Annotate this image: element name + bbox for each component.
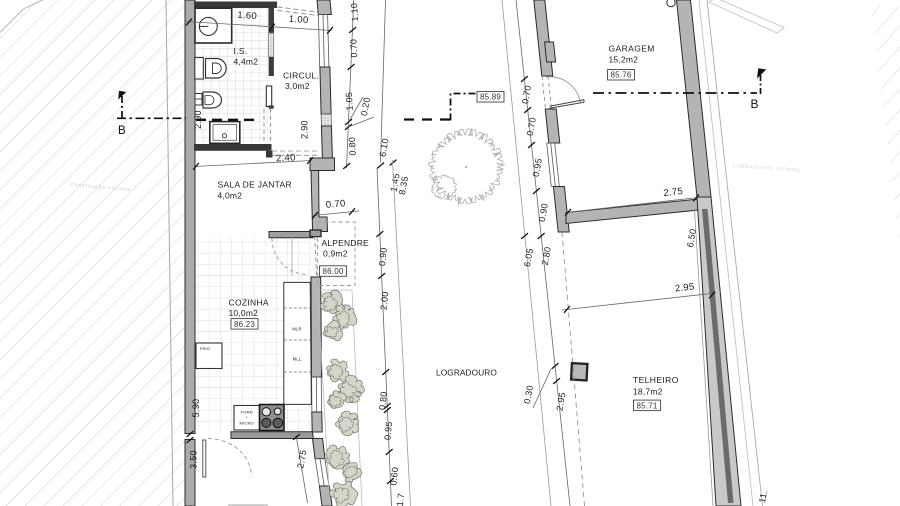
svg-text:0,9m2: 0,9m2 bbox=[323, 249, 348, 259]
svg-text:2.75: 2.75 bbox=[663, 186, 684, 199]
svg-text:SALA DE JANTAR: SALA DE JANTAR bbox=[218, 180, 292, 190]
svg-text:2.00: 2.00 bbox=[379, 291, 391, 311]
svg-text:4,0m2: 4,0m2 bbox=[218, 191, 243, 201]
svg-text:1.7: 1.7 bbox=[395, 492, 406, 506]
svg-text:1.05: 1.05 bbox=[344, 92, 355, 111]
svg-text:2.90: 2.90 bbox=[299, 120, 309, 139]
svg-text:0.95: 0.95 bbox=[382, 421, 394, 441]
svg-text:COZINHA: COZINHA bbox=[229, 298, 269, 308]
svg-text:85.76: 85.76 bbox=[610, 71, 631, 80]
svg-text:CIRCUL.: CIRCUL. bbox=[283, 71, 319, 81]
svg-text:0.70: 0.70 bbox=[348, 39, 359, 58]
svg-text:2.90: 2.90 bbox=[193, 110, 203, 129]
svg-text:I.S.: I.S. bbox=[234, 46, 248, 56]
svg-text:4,4m2: 4,4m2 bbox=[234, 57, 259, 67]
svg-text:2.40: 2.40 bbox=[276, 152, 296, 164]
svg-text:3,0m2: 3,0m2 bbox=[285, 81, 310, 91]
svg-text:B: B bbox=[751, 97, 759, 111]
svg-text:0.80: 0.80 bbox=[377, 391, 389, 411]
svg-text:86.23: 86.23 bbox=[234, 320, 255, 329]
svg-text:10,0m2: 10,0m2 bbox=[229, 308, 259, 318]
svg-text:MLR: MLR bbox=[292, 327, 301, 332]
svg-text:LOGRADOURO: LOGRADOURO bbox=[436, 368, 497, 378]
svg-text:MICRO: MICRO bbox=[240, 421, 254, 426]
svg-text:1.10: 1.10 bbox=[349, 3, 360, 22]
svg-text:3.50: 3.50 bbox=[188, 450, 198, 469]
svg-text:2.95: 2.95 bbox=[674, 282, 695, 295]
svg-text:18,7m2: 18,7m2 bbox=[633, 387, 663, 397]
svg-text:1.60: 1.60 bbox=[237, 10, 257, 22]
svg-text:15,2m2: 15,2m2 bbox=[609, 55, 639, 65]
svg-text:0.70: 0.70 bbox=[325, 198, 346, 211]
svg-text:0.80: 0.80 bbox=[347, 137, 358, 156]
svg-text:FRIG: FRIG bbox=[200, 346, 210, 351]
svg-text:ALPENDRE: ALPENDRE bbox=[322, 238, 370, 248]
svg-text:0.90: 0.90 bbox=[377, 247, 389, 267]
svg-text:B: B bbox=[118, 125, 126, 137]
svg-text:5.90: 5.90 bbox=[191, 399, 201, 418]
svg-text:+: + bbox=[245, 415, 248, 420]
svg-text:1.00: 1.00 bbox=[288, 14, 308, 26]
svg-text:GARAGEM: GARAGEM bbox=[609, 44, 655, 54]
svg-text:TELHEIRO: TELHEIRO bbox=[633, 375, 679, 385]
svg-text:86.00: 86.00 bbox=[322, 267, 343, 276]
svg-text:85.89: 85.89 bbox=[480, 93, 501, 102]
svg-text:MLL: MLL bbox=[293, 357, 302, 362]
svg-text:85.71: 85.71 bbox=[636, 401, 657, 410]
svg-text:0.60: 0.60 bbox=[388, 466, 400, 486]
